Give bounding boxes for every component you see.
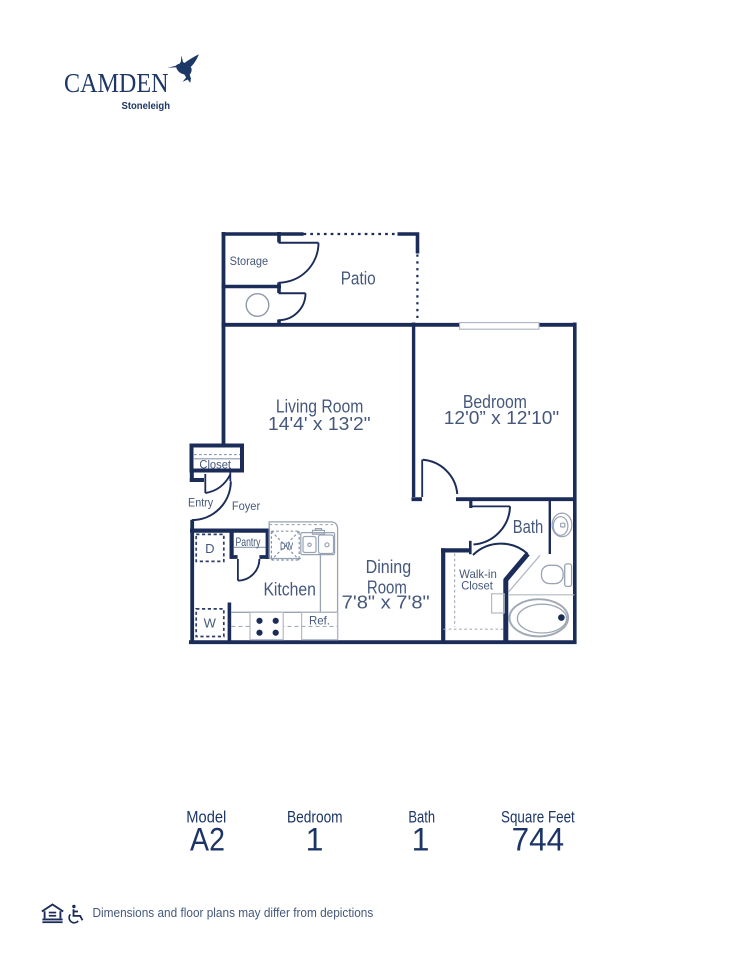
svg-text:1: 1 xyxy=(306,821,324,857)
svg-text:DW: DW xyxy=(280,540,293,552)
svg-text:Storage: Storage xyxy=(230,254,269,268)
svg-text:14'4' x 13'2": 14'4' x 13'2" xyxy=(268,414,371,434)
svg-text:A2: A2 xyxy=(190,821,225,857)
svg-text:Bath: Bath xyxy=(513,517,544,537)
svg-text:1: 1 xyxy=(412,821,430,857)
svg-text:Kitchen: Kitchen xyxy=(263,579,316,599)
svg-text:Dimensions and floor plans may: Dimensions and floor plans may differ fr… xyxy=(93,906,374,920)
svg-text:Closet: Closet xyxy=(199,457,231,471)
svg-text:Patio: Patio xyxy=(341,268,376,288)
svg-text:744: 744 xyxy=(512,821,565,857)
svg-text:Dining: Dining xyxy=(366,557,412,577)
svg-text:Stoneleigh: Stoneleigh xyxy=(122,101,171,112)
svg-text:Ref.: Ref. xyxy=(309,613,330,627)
svg-text:Closet: Closet xyxy=(461,578,493,592)
svg-text:Pantry: Pantry xyxy=(236,535,261,549)
svg-text:Entry: Entry xyxy=(188,495,213,509)
svg-text:W: W xyxy=(204,616,217,631)
svg-text:D: D xyxy=(205,541,214,556)
svg-text:CAMDEN: CAMDEN xyxy=(64,68,169,98)
svg-text:12'0” x 12'10": 12'0” x 12'10" xyxy=(444,408,560,428)
svg-text:7'8" x 7'8": 7'8" x 7'8" xyxy=(342,593,430,613)
svg-text:Foyer: Foyer xyxy=(232,499,260,513)
